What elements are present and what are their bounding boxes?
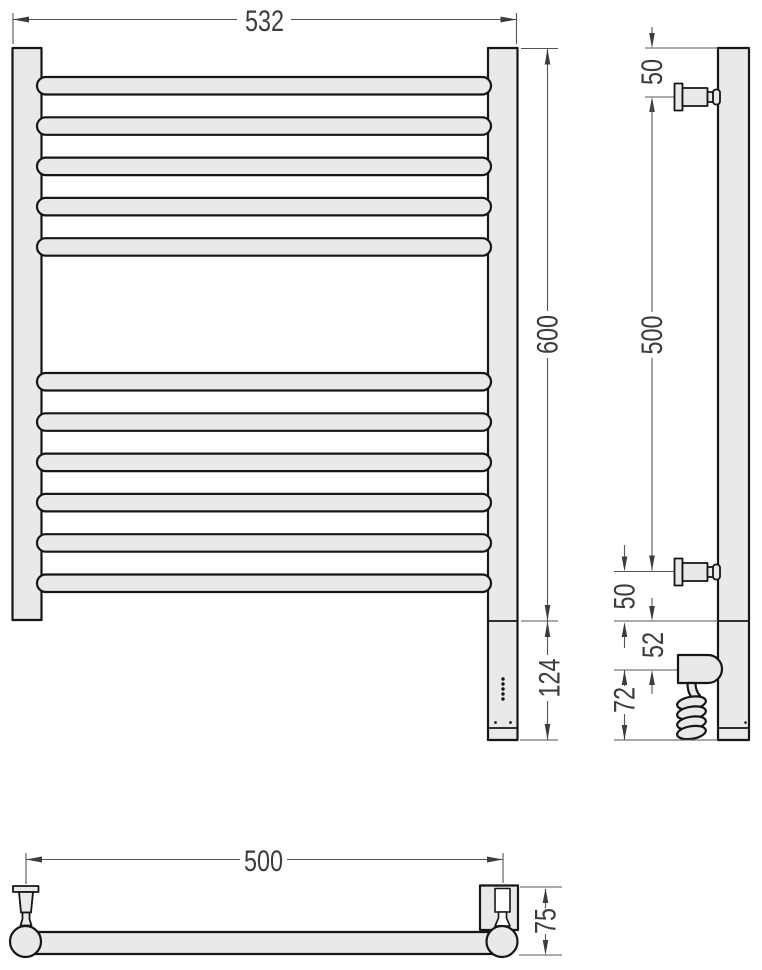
right-post	[488, 48, 518, 740]
bracket-body	[683, 88, 708, 106]
dim-label-top-offset: 50	[635, 59, 668, 85]
arrow-up-icon	[622, 622, 628, 637]
bracket-cap	[713, 90, 720, 105]
bracket-body	[683, 563, 708, 581]
rung	[37, 198, 491, 216]
dim-label-heater-section: 124	[533, 658, 566, 697]
arrow-left-icon	[26, 857, 42, 863]
side-post	[718, 48, 749, 740]
dim-label-height: 600	[531, 315, 564, 354]
arrow-down-icon	[545, 605, 551, 621]
arrow-down-icon	[649, 33, 655, 48]
arrow-down-icon	[649, 606, 655, 621]
arrow-down-icon	[649, 556, 655, 571]
arrow-up-icon	[543, 888, 549, 903]
dim-wall-depth: 75	[519, 887, 562, 955]
plan-tube	[25, 932, 507, 954]
rungs	[37, 77, 491, 592]
rung	[37, 454, 491, 472]
arrow-up-icon	[545, 621, 551, 637]
bracket-body	[19, 892, 33, 913]
arrow-down-icon	[622, 725, 628, 740]
arrow-down-icon	[622, 557, 628, 572]
rung	[37, 158, 491, 176]
bracket-cap	[713, 565, 720, 580]
dim-label-collar: 52	[636, 632, 669, 658]
arrow-left-icon	[13, 17, 29, 23]
rung	[37, 413, 491, 431]
arrow-right-icon	[501, 17, 517, 23]
dim-label-plan-spacing: 500	[244, 844, 283, 877]
bracket-body	[495, 889, 510, 913]
arrow-up-icon	[649, 670, 655, 685]
side-view: 50 500 50 52	[608, 27, 749, 741]
dim-bracket-spacing: 500	[635, 105, 668, 571]
plan-bracket-left	[10, 886, 41, 957]
dim-label-heater-depth: 72	[608, 687, 641, 713]
technical-drawing: 532 600 124	[0, 0, 762, 970]
arrow-up-icon	[622, 670, 628, 685]
dim-heater-section: 124	[520, 621, 566, 740]
wall-bracket-bottom	[675, 559, 721, 586]
rung	[37, 534, 491, 552]
side-screw	[744, 721, 747, 724]
drawing-canvas: 532 600 124	[0, 0, 762, 970]
dim-label-bottom-offset: 50	[608, 583, 641, 609]
bracket-neck	[21, 913, 32, 926]
bracket-ball	[487, 926, 518, 957]
dim-rail-height: 600	[521, 49, 564, 622]
arrow-down-icon	[543, 940, 549, 955]
rung	[37, 117, 491, 135]
dim-overall-width: 532	[13, 4, 517, 44]
arrow-down-icon	[545, 724, 551, 740]
arrow-up-icon	[545, 49, 551, 65]
rung	[37, 575, 491, 593]
rung	[37, 373, 491, 391]
rung	[37, 494, 491, 512]
wall-bracket-top	[675, 84, 721, 111]
front-view: 532 600 124	[13, 4, 567, 740]
dim-plan-spacing: 500	[26, 844, 503, 884]
dim-label-wall-depth: 75	[529, 908, 562, 934]
left-post	[13, 48, 42, 620]
bracket-flange	[675, 559, 683, 586]
arrow-right-icon	[487, 857, 503, 863]
plan-view: 500 75	[10, 844, 562, 957]
rung	[37, 77, 491, 95]
bracket-ball	[10, 926, 41, 957]
dim-label-width: 532	[245, 4, 284, 37]
dim-label-bracket-spacing: 500	[635, 315, 668, 354]
heating-element	[678, 655, 722, 683]
bracket-flange	[675, 84, 683, 111]
rung	[37, 238, 491, 256]
power-cable-coil	[676, 695, 707, 741]
